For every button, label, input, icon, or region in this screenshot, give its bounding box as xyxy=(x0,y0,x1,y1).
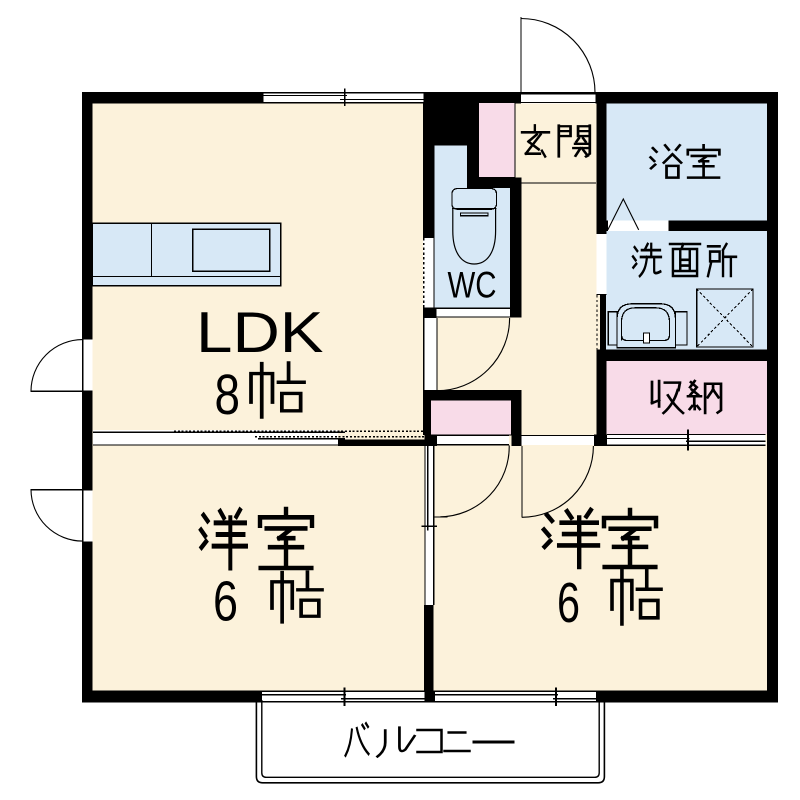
svg-text:6: 6 xyxy=(213,570,238,634)
svg-text:LDK: LDK xyxy=(196,301,324,365)
svg-text:6: 6 xyxy=(557,571,580,635)
svg-text:WC: WC xyxy=(448,264,497,306)
svg-text:8: 8 xyxy=(215,363,241,427)
